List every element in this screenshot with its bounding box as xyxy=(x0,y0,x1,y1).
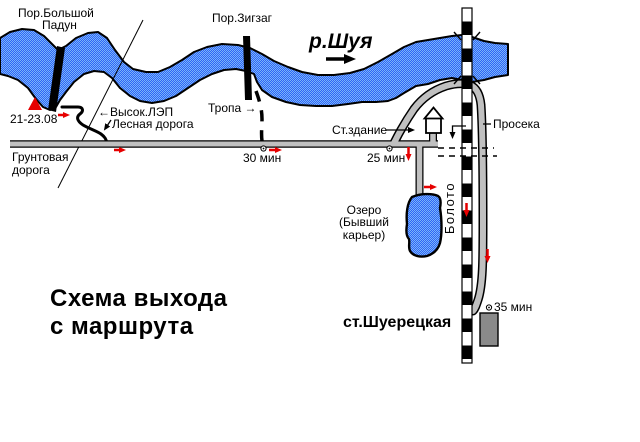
station-building-label: Ст.здание xyxy=(332,123,387,137)
lake-shape xyxy=(406,194,441,257)
route-exit-map: Пор.Большой Падун Пор.Зигзаг р.Шуя 21-23… xyxy=(0,0,640,442)
river-name-label: р.Шуя xyxy=(308,30,373,53)
railway-line xyxy=(462,8,472,363)
station-name-label: ст.Шуерецкая xyxy=(343,314,451,331)
map-title-line2: с маршрута xyxy=(50,313,194,340)
map-drawing: Пор.Большой Падун Пор.Зигзаг р.Шуя 21-23… xyxy=(0,0,640,442)
waypoint-marker-35min xyxy=(486,305,491,310)
time-25min-label: 25 мин xyxy=(367,151,405,165)
forest-road-pointer-arrow xyxy=(105,120,111,129)
time-30min-label: 30 мин xyxy=(243,151,281,165)
rapid-zigzag-label: Пор.Зигзаг xyxy=(212,11,273,25)
trail-label: Тропа → xyxy=(208,101,257,115)
rapid-bolshoy-padun-label-line2: Падун xyxy=(42,18,77,32)
camp-dates-label: 21-23.08 xyxy=(10,112,58,126)
dirt-road-label-line2: дорога xyxy=(12,163,50,177)
dirt-road-label-line1: Грунтовая xyxy=(12,150,68,164)
trail-dashed-line xyxy=(256,91,262,141)
station-platform xyxy=(480,313,498,346)
forest-road-label: Лесная дорога xyxy=(112,117,194,131)
time-35min-label: 35 мин xyxy=(494,300,532,314)
station-building-icon xyxy=(425,108,443,134)
rapid-zigzag-bar xyxy=(243,36,252,100)
lake-label-line2: (Бывший xyxy=(339,215,389,229)
clearing-label: Просека xyxy=(493,117,540,131)
swamp-label: Болото xyxy=(442,182,457,234)
lake-label-line3: карьер) xyxy=(343,228,385,242)
map-title-line1: Схема выхода xyxy=(50,285,228,312)
